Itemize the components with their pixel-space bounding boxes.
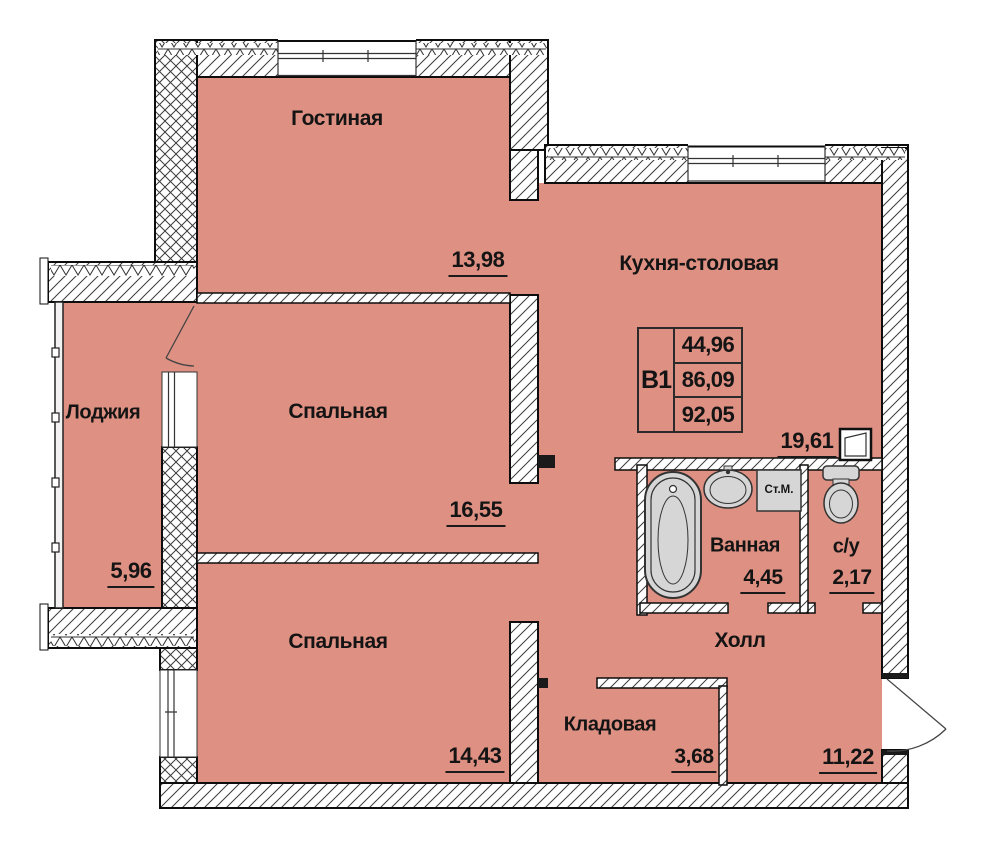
toilet xyxy=(823,466,859,523)
room-area-storage: 3,68 xyxy=(671,745,716,773)
entrance-door xyxy=(887,679,946,751)
wall-center-c xyxy=(510,622,538,783)
room-label-wc: с/у xyxy=(833,536,860,559)
room-label-kitchen: Кухня-столовая xyxy=(619,252,778,276)
window-bedroom2 xyxy=(160,670,197,757)
zig-top-b xyxy=(416,43,546,55)
wall-storage-right xyxy=(719,686,727,785)
unit-living-area: 44,96 xyxy=(675,329,741,362)
wall-left-lower-b xyxy=(160,757,197,783)
window-living xyxy=(278,39,416,76)
cap-storage-wall xyxy=(538,678,548,688)
wall-loggia-bedroom xyxy=(162,447,197,608)
wall-bottom xyxy=(160,783,908,808)
window-kitchen xyxy=(688,144,825,182)
wall-right-upper xyxy=(882,148,908,678)
room-label-hall: Холл xyxy=(714,629,765,653)
window-loggia-bedroom xyxy=(162,372,197,447)
floorplan-page: Гостиная 13,98 Кухня-столовая 19,61 Спал… xyxy=(0,0,1000,851)
wall-bath-bottom-c xyxy=(863,603,882,613)
zig-loggia-bottom xyxy=(51,634,194,646)
zig-top-a xyxy=(158,43,278,55)
loggia-top-lip xyxy=(40,258,48,304)
zig-kitchen-b xyxy=(825,148,905,160)
floor-left-column xyxy=(197,77,510,785)
unit-total-area: 92,05 xyxy=(675,396,741,431)
room-label-bedroom-1: Спальная xyxy=(288,400,387,424)
wall-center-a xyxy=(510,150,538,200)
washing-machine-label: Ст.М. xyxy=(765,484,794,496)
room-label-gostinaya: Гостиная xyxy=(291,107,383,131)
unit-area: 86,09 xyxy=(675,362,741,397)
wall-step-right xyxy=(510,40,548,150)
room-area-bedroom-1: 16,55 xyxy=(446,497,505,527)
room-label-bedroom-2: Спальная xyxy=(288,630,387,654)
wall-left-upper xyxy=(155,40,197,282)
room-label-loggia: Лоджия xyxy=(66,402,140,425)
room-area-hall: 11,22 xyxy=(819,744,877,774)
wall-left-lower-a xyxy=(160,648,197,670)
loggia-bottom-lip xyxy=(40,604,48,650)
floorplan-svg xyxy=(0,0,1000,851)
room-area-bedroom-2: 14,43 xyxy=(445,743,504,773)
room-label-bathroom: Ванная xyxy=(710,535,780,558)
room-area-loggia: 5,96 xyxy=(107,558,154,588)
loggia-glazing xyxy=(52,302,63,608)
zig-kitchen-a xyxy=(548,148,688,160)
wall-bedroom-divider xyxy=(197,553,538,563)
unit-code: В1 xyxy=(639,329,675,431)
wall-bath-bottom-a xyxy=(640,603,728,613)
unit-info-box: В1 44,96 86,09 92,05 xyxy=(637,327,743,433)
room-label-storage: Кладовая xyxy=(564,714,657,737)
zig-loggia-top xyxy=(51,265,194,276)
cap-kitchen-wall xyxy=(538,455,555,468)
bathtub xyxy=(645,472,701,598)
wall-living-bedroom xyxy=(197,293,510,303)
wall-center-b xyxy=(510,295,538,483)
cap-entry-top xyxy=(882,673,908,678)
room-area-wc: 2,17 xyxy=(829,566,874,594)
wall-storage-top xyxy=(597,678,727,688)
unit-values: 44,96 86,09 92,05 xyxy=(675,329,741,431)
vent-shaft xyxy=(840,429,871,460)
room-area-gostinaya: 13,98 xyxy=(448,247,507,277)
room-area-kitchen: 19,61 xyxy=(777,428,836,458)
room-area-bathroom: 4,45 xyxy=(740,566,785,594)
